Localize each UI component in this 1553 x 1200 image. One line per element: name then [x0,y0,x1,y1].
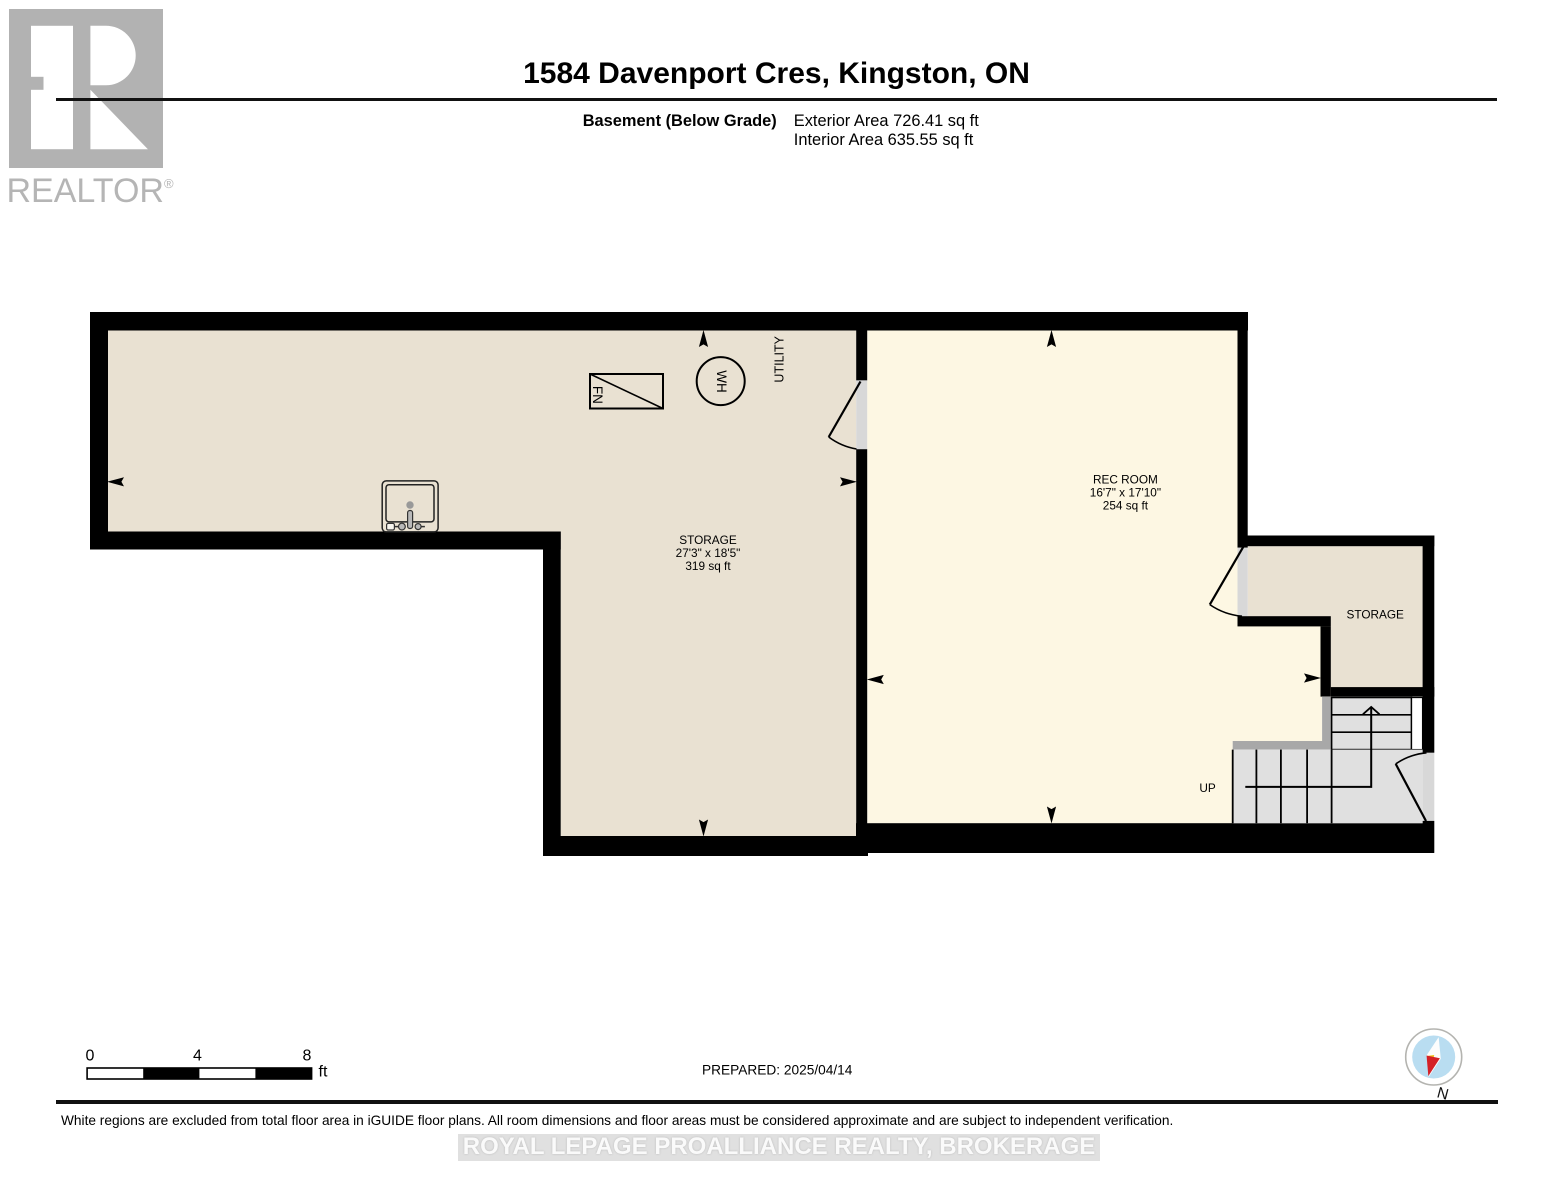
svg-text:STORAGE: STORAGE [679,533,737,547]
svg-text:16'7" x 17'10": 16'7" x 17'10" [1090,485,1161,499]
svg-text:ft: ft [319,1064,328,1081]
svg-text:STORAGE: STORAGE [1346,608,1404,622]
svg-text:UTILITY: UTILITY [773,335,787,382]
svg-text:319 sq ft: 319 sq ft [685,559,731,573]
svg-text:8: 8 [303,1048,312,1065]
svg-text:254 sq ft: 254 sq ft [1103,498,1149,512]
svg-text:FN: FN [590,386,605,404]
svg-text:4: 4 [193,1048,202,1065]
svg-text:UP: UP [1199,781,1216,795]
svg-text:0: 0 [86,1048,95,1065]
svg-text:PREPARED: 2025/04/14: PREPARED: 2025/04/14 [702,1063,853,1078]
svg-text:REC ROOM: REC ROOM [1093,472,1158,486]
svg-text:27'3" x 18'5": 27'3" x 18'5" [676,546,741,560]
svg-text:WH: WH [714,370,729,393]
